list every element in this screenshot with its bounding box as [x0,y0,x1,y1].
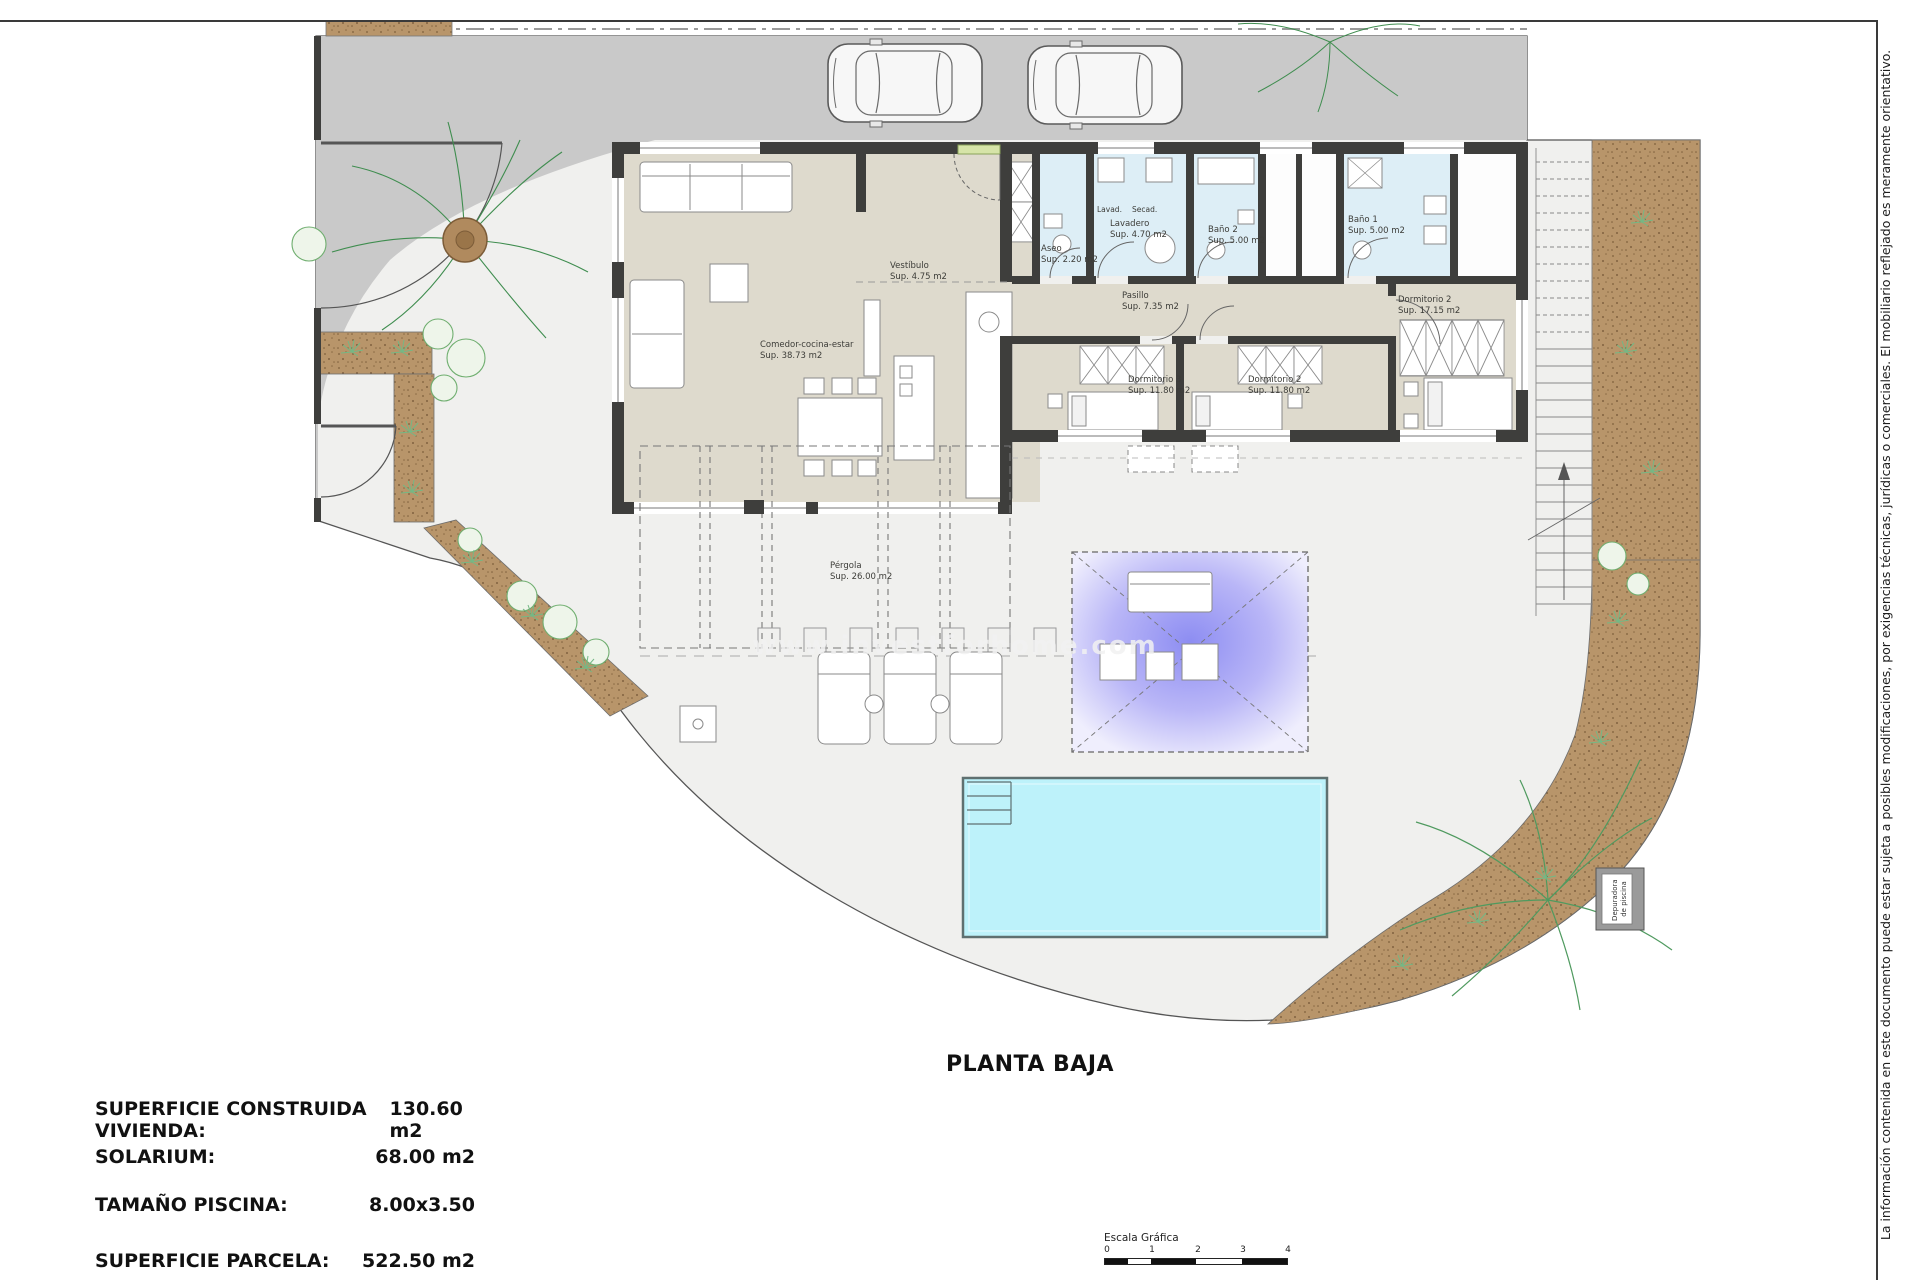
pergola-post [744,500,764,514]
washer-label: Lavad. [1097,205,1122,214]
summary-row: SUPERFICIE PARCELA: 522.50 m2 [95,1250,475,1272]
summary-label: SUPERFICIE CONSTRUIDA VIVIENDA: [95,1098,390,1142]
sheet-border-top [0,20,1878,22]
summary-row: TAMAÑO PISCINA: 8.00x3.50 [95,1194,475,1216]
room-label-dorm2: Dormitorio 2 Sup. 11.80 m2 [1248,375,1310,396]
pool [963,778,1327,937]
room-label-dorm3: Dormitorio 3 Sup. 11.80 m2 [1128,375,1190,396]
side-table [931,695,949,713]
dryer [1146,158,1172,182]
summary-value: 8.00x3.50 [369,1194,475,1216]
summary-label: TAMAÑO PISCINA: [95,1194,288,1216]
car-1 [828,39,982,127]
tv-unit [864,300,880,376]
outdoor-chair-right [1182,644,1218,680]
floor-plan: Depuradora de piscina Comedor-cocina-est… [0,0,1920,1280]
dining-table [798,398,882,456]
summary-value: 522.50 m2 [362,1250,475,1272]
scale-bar-caption: Escala Gráfica [1104,1232,1304,1244]
watermark: www.investforhome.com [752,631,1158,661]
summary-row: SUPERFICIE CONSTRUIDA VIVIENDA: 130.60 m… [95,1098,475,1142]
coffee-table [710,264,748,302]
sun-loungers [818,652,1002,744]
summary-value: 68.00 m2 [375,1146,475,1168]
pool-equipment-label: Depuradora [1611,879,1619,921]
page-title: PLANTA BAJA [880,1052,1180,1077]
scale-bar-ticks: 0 1 2 3 4 [1104,1245,1304,1257]
dryer-label: Secad. [1132,205,1157,214]
disclaimer-text: La información contenida en este documen… [1878,18,1898,1273]
outdoor-sofa [1128,572,1212,612]
entry-mat [958,145,1000,154]
summary-label: SOLARIUM: [95,1146,215,1168]
sofa [640,162,792,212]
scale-bar-segments [1104,1258,1288,1265]
svg-text:Depuradora de piscina: Depuradora de piscina [1611,877,1628,921]
pool-equipment-box: Depuradora de piscina [1596,868,1644,930]
hedge-strip-top [326,21,452,36]
scale-bar: Escala Gráfica 0 1 2 3 4 [1104,1232,1304,1265]
car-2 [1028,41,1182,129]
side-table [865,695,883,713]
washer [1098,158,1124,182]
outdoor-shower [680,706,716,742]
summary-value: 130.60 m2 [390,1098,476,1142]
bathtub [1198,158,1254,184]
summary-row: SOLARIUM: 68.00 m2 [95,1146,475,1168]
kitchen-sink [979,312,999,332]
room-label-dorm1: Dormitorio 2 Sup. 17.15 m2 [1398,295,1460,316]
summary-label: SUPERFICIE PARCELA: [95,1250,330,1272]
